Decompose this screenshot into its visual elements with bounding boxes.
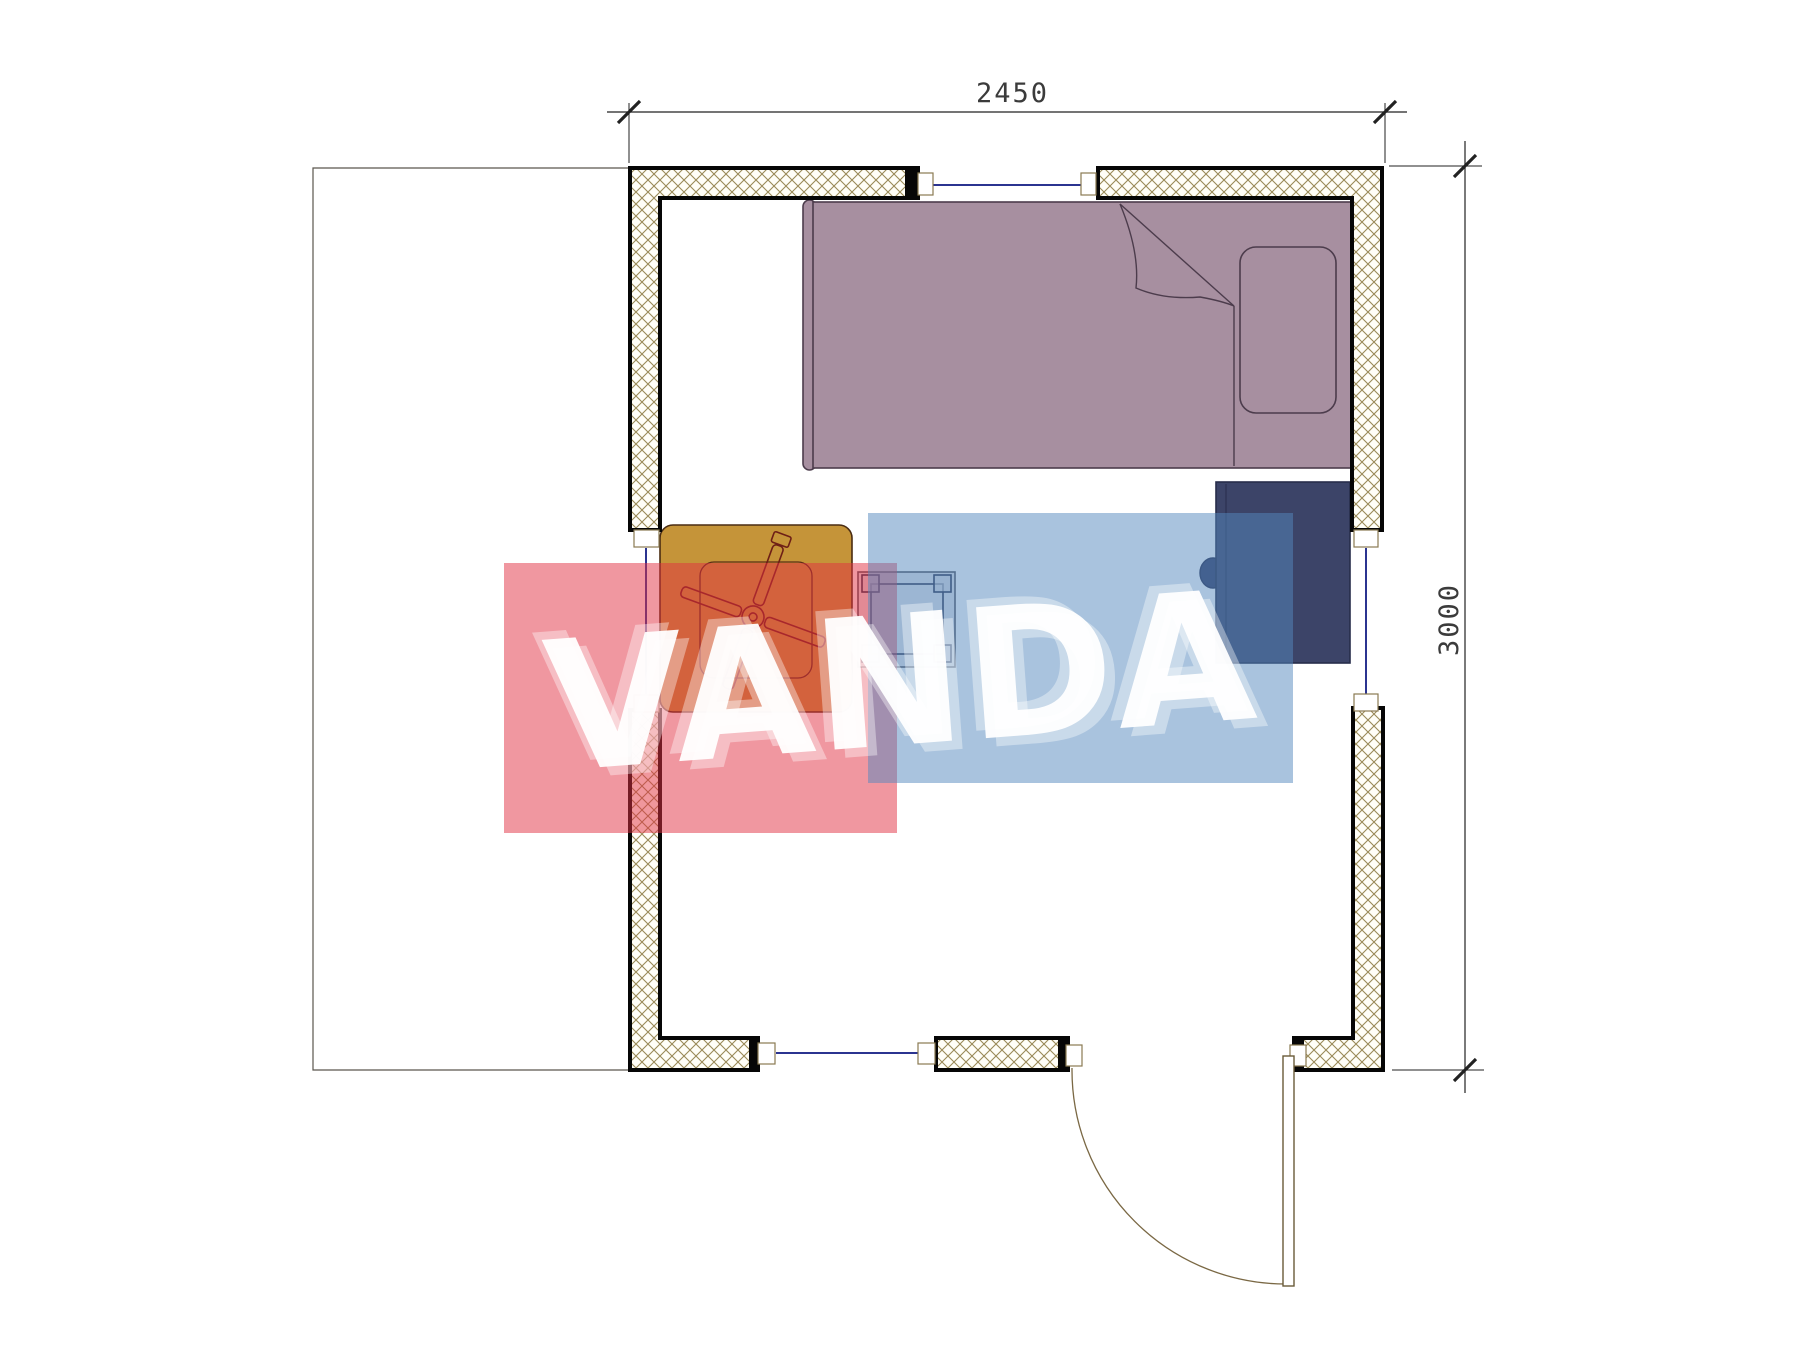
pillow	[1240, 247, 1336, 413]
bed	[803, 200, 1352, 470]
floor-plan-page: 2450 3000 VANDA	[0, 0, 1800, 1350]
dimension-top	[607, 101, 1407, 163]
door-swing-arc	[1072, 1068, 1288, 1284]
entrance-door	[1072, 1056, 1294, 1286]
wall-bottom-middle	[936, 1038, 1068, 1070]
dimension-right-label: 3000	[1436, 547, 1463, 692]
wall-bottom-right	[1302, 708, 1383, 1070]
dimension-top-label: 2450	[940, 80, 1085, 107]
door-leaf	[1283, 1056, 1294, 1286]
watermark-text: VANDA	[539, 567, 1261, 800]
